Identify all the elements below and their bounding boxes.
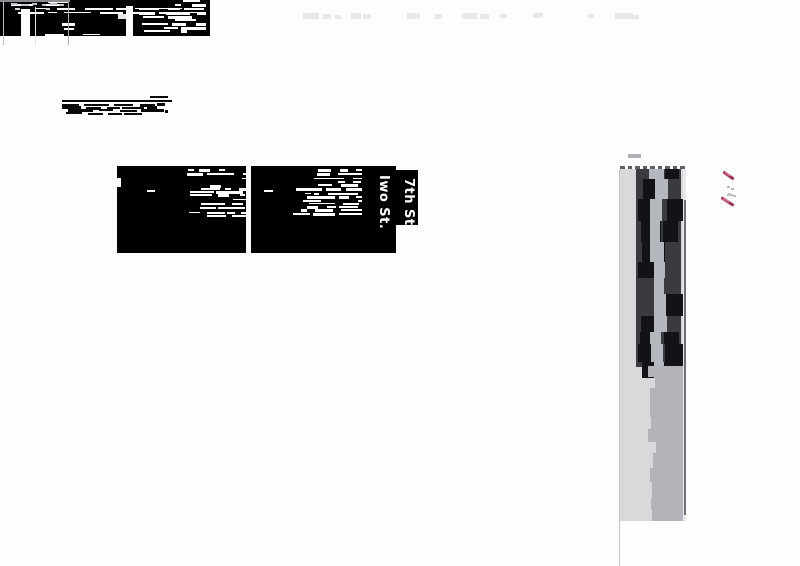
faded-dash <box>303 13 319 19</box>
note-stroke <box>108 113 122 115</box>
faded-dash <box>407 13 420 19</box>
block-scribble <box>190 194 212 196</box>
gray-fleck <box>727 194 733 196</box>
block-scribble <box>218 194 229 196</box>
block-scribble <box>207 173 234 175</box>
title-scribble <box>143 16 164 18</box>
title-scribble <box>48 12 57 14</box>
title-scribble <box>139 8 159 10</box>
block-scribble <box>305 193 311 195</box>
note-stroke <box>124 113 142 115</box>
title-scribble <box>139 12 155 14</box>
road-lower-block <box>650 388 683 403</box>
title-scribble <box>144 30 170 32</box>
road-block <box>665 169 679 179</box>
note-stroke <box>88 113 103 115</box>
road-lower-block <box>656 442 683 453</box>
scanned-map-page: Iwo St. 7th St. <box>0 0 800 566</box>
block-scribble <box>225 188 231 190</box>
block-scribble <box>232 215 247 217</box>
title-scribble <box>184 8 205 10</box>
road-block <box>666 294 683 316</box>
road-center-block <box>655 179 669 199</box>
faded-dash <box>335 15 341 19</box>
note-stroke <box>150 96 168 98</box>
note-stroke <box>141 109 163 112</box>
title-scribble <box>85 8 114 10</box>
gray-fleck <box>727 186 730 188</box>
title-gap <box>126 6 133 36</box>
faded-dash <box>500 14 507 18</box>
gray-fleck <box>733 195 736 197</box>
faded-dash <box>480 14 489 19</box>
road-center-block <box>654 262 664 278</box>
block-scribble <box>199 169 210 172</box>
faded-dash <box>435 14 442 19</box>
block-scribble <box>218 207 245 209</box>
footer-tiny-text-dash <box>50 3 57 5</box>
faded-dash <box>363 14 371 19</box>
block-scribble <box>232 203 243 205</box>
block-scribble <box>307 196 335 198</box>
block-scribble <box>188 169 195 171</box>
title-scribble <box>83 34 101 36</box>
block-scribble <box>301 209 308 212</box>
title-scribble <box>18 12 44 15</box>
block-scribble <box>241 212 247 215</box>
map-title-block <box>0 0 210 36</box>
block-scribble <box>147 190 155 192</box>
footer-tiny-text-dash <box>59 4 64 6</box>
footer-tiny-text-dash <box>46 8 50 10</box>
footer-tiny-text-dash <box>21 4 29 6</box>
block-scribble <box>328 193 357 196</box>
road-left-border <box>619 169 620 566</box>
road-right-border <box>684 200 686 515</box>
block-scribble <box>318 169 331 172</box>
title-scribble <box>197 12 206 14</box>
faded-dash <box>462 13 477 19</box>
block-scribble <box>219 169 224 171</box>
block-scribble <box>339 206 358 208</box>
block-scribble <box>341 184 358 187</box>
faded-dash <box>631 15 639 19</box>
block-scribble <box>318 184 332 186</box>
block-scribble <box>346 188 362 191</box>
note-stroke <box>114 104 133 106</box>
road-center-block <box>650 332 661 344</box>
title-scribble <box>116 8 129 11</box>
block-scribble <box>353 181 362 183</box>
block-scribble <box>327 206 336 209</box>
faded-dash <box>323 14 331 19</box>
title-scribble <box>142 23 168 25</box>
road-block <box>664 332 678 344</box>
footer-left-border <box>3 2 4 45</box>
block-scribble <box>314 178 344 180</box>
title-scribble <box>172 23 186 26</box>
road-lower-block <box>650 468 683 482</box>
title-scribble <box>196 23 206 25</box>
title-scribble <box>175 4 181 6</box>
title-scribble <box>100 12 122 14</box>
block-scribble <box>356 196 362 198</box>
block-scribble <box>207 215 226 217</box>
title-scribble <box>181 30 187 32</box>
block-scribble <box>339 196 349 198</box>
road-lower-block <box>648 366 683 377</box>
block-scribble <box>293 213 309 215</box>
road-top-smudge <box>628 154 641 158</box>
vertical-road-strip <box>0 36 800 566</box>
footer-tiny-text-dash <box>15 8 20 10</box>
block-scribble <box>189 212 200 214</box>
block-scribble <box>340 169 348 172</box>
title-scribble <box>45 34 64 36</box>
footer-tiny-text-dash <box>42 4 46 6</box>
block-scribble <box>313 213 334 215</box>
road-lower-block <box>651 498 683 509</box>
block-scribble <box>233 199 247 200</box>
footer-divider <box>35 7 36 45</box>
city-block-1 <box>117 166 246 253</box>
title-scribble <box>57 8 74 11</box>
footer-top-border <box>0 0 70 2</box>
road-center-block <box>649 169 664 179</box>
block-scribble <box>317 173 330 175</box>
block-scribble <box>356 169 362 171</box>
title-scribble <box>175 19 196 21</box>
road-lower-block <box>648 429 683 442</box>
street-label-iwo: Iwo St. <box>376 175 391 229</box>
road-lower-block <box>651 417 683 429</box>
note-stroke <box>120 110 137 112</box>
block-scribble <box>303 200 321 202</box>
title-scribble <box>183 0 200 2</box>
road-center-block <box>650 221 660 241</box>
block-scribble <box>242 178 247 180</box>
title-scribble <box>168 16 192 19</box>
road-lower-block <box>652 482 683 498</box>
block-scribble <box>338 181 345 184</box>
road-center-block <box>650 199 663 222</box>
block-scribble <box>338 173 362 174</box>
title-scribble <box>164 27 178 28</box>
gray-fleck <box>731 188 734 190</box>
block-edge-notch <box>117 178 121 187</box>
block-scribble <box>339 213 362 215</box>
footer-tiny-text-dash <box>11 3 17 5</box>
block-scribble <box>264 190 273 192</box>
block-scribble <box>326 188 341 191</box>
note-stroke <box>84 104 109 106</box>
road-center-block <box>650 242 665 262</box>
footer-tiny-text-dash <box>32 3 37 5</box>
block-scribble <box>307 206 318 209</box>
road-center-block <box>654 278 664 295</box>
block-scribble <box>358 200 362 202</box>
road-center-block <box>654 316 666 332</box>
block-scribble <box>240 194 246 196</box>
block-scribble <box>309 203 335 205</box>
title-scribble <box>168 8 180 10</box>
street-label-7th: 7th St. <box>401 178 416 231</box>
title-scribble <box>192 4 206 7</box>
block-scribble <box>315 209 334 212</box>
block-scribble <box>341 209 362 211</box>
block-scribble <box>207 212 225 214</box>
note-stroke <box>99 109 113 111</box>
faded-dash <box>351 13 361 19</box>
block-scribble <box>227 212 235 214</box>
road-center-block <box>654 294 666 316</box>
block-scribble <box>353 178 362 180</box>
footer-right-border <box>68 2 69 45</box>
road-center-block <box>651 344 663 363</box>
road-block <box>665 344 685 363</box>
block-scribble <box>190 191 214 193</box>
block-scribble <box>314 193 319 195</box>
block-scribble <box>296 188 322 191</box>
title-scribble <box>64 28 74 30</box>
block-scribble <box>201 188 220 190</box>
block-scribble <box>187 173 204 176</box>
block-scribble <box>200 207 216 209</box>
note-stroke <box>165 110 168 113</box>
faded-dash <box>588 14 594 18</box>
road-lower-block <box>653 453 683 469</box>
road-lower-block <box>650 403 683 417</box>
block-scribble <box>343 203 359 205</box>
road-block <box>663 221 678 241</box>
block-scribble <box>243 173 247 175</box>
faded-dash <box>533 13 543 18</box>
block-scribble <box>201 203 224 205</box>
title-scribble <box>166 12 190 14</box>
note-underline <box>62 100 172 102</box>
road-lower-block <box>655 377 683 388</box>
road-lower-block <box>652 509 683 521</box>
note-stroke <box>157 103 165 105</box>
note-stroke <box>66 112 82 114</box>
